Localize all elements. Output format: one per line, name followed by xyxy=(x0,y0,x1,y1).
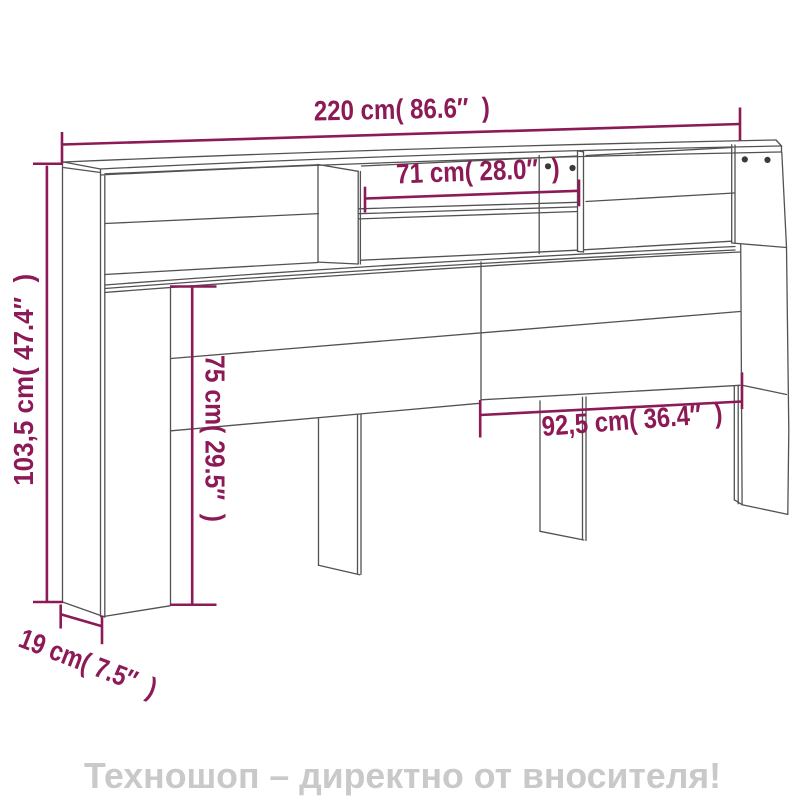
svg-text:103,5 cm( 47.4″ ): 103,5 cm( 47.4″ ) xyxy=(8,274,39,486)
svg-text:Техношоп – директно от вносите: Техношоп – директно от вносителя! xyxy=(84,755,721,796)
svg-text:75 cm( 29.5″ ): 75 cm( 29.5″ ) xyxy=(200,355,231,522)
svg-text:71 cm( 28.0″ ): 71 cm( 28.0″ ) xyxy=(396,153,561,190)
svg-text:220 cm( 86.6″ ): 220 cm( 86.6″ ) xyxy=(313,92,490,127)
